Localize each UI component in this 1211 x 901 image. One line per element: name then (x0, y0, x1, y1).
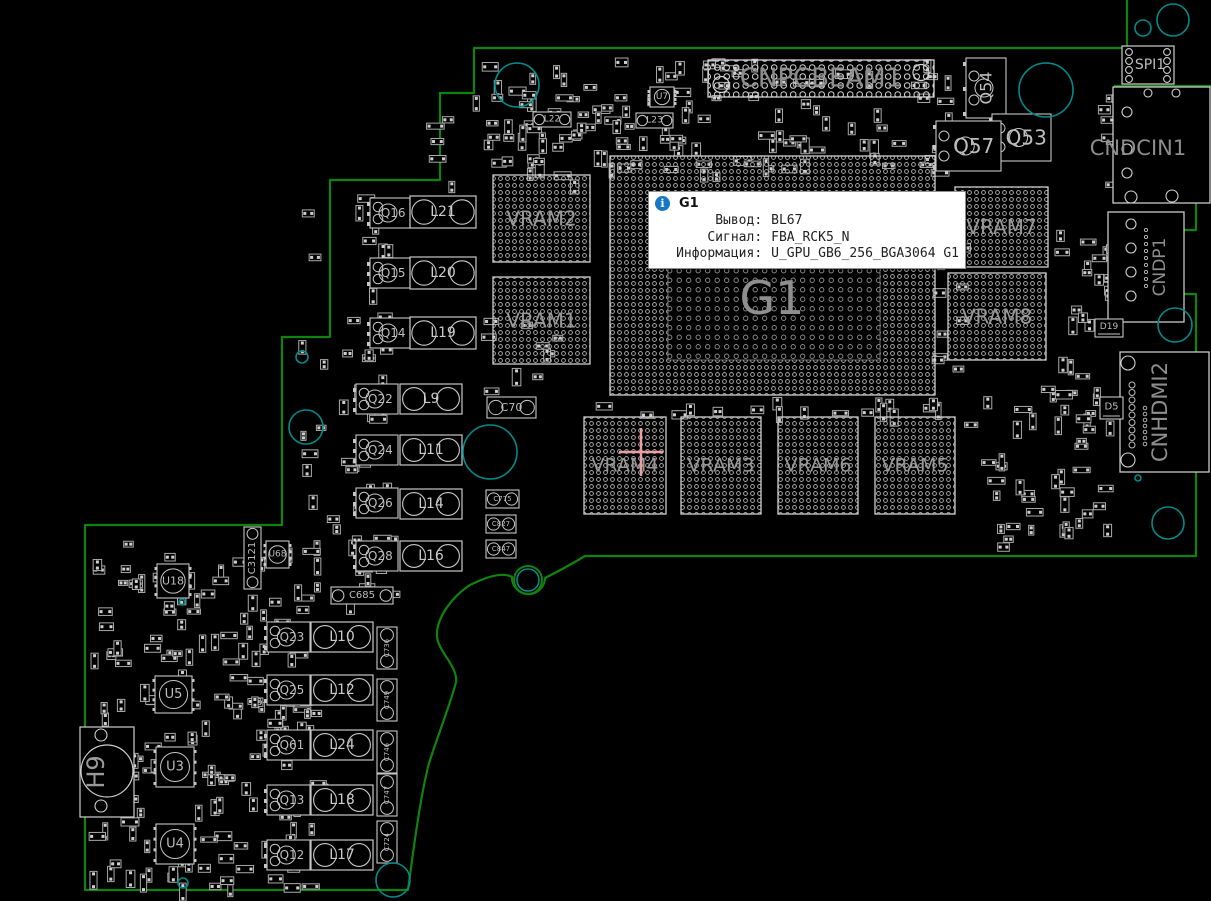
passive-pad (947, 114, 950, 117)
passive-pad (180, 601, 183, 604)
component-Q22[interactable]: Q22 (353, 384, 398, 414)
boardview-canvas[interactable]: G1VRAM2VRAM1VRAM7VRAM8VRAM4VRAM3VRAM6VRA… (0, 0, 1211, 901)
passive-pad (863, 147, 866, 150)
passive-pad (578, 133, 581, 136)
passive-pad (1052, 398, 1055, 401)
passive-pad (1071, 318, 1074, 321)
component-D5[interactable]: D5 (1100, 397, 1123, 419)
component-VRAM6[interactable]: VRAM6 (778, 417, 858, 514)
component-VRAM4[interactable]: VRAM4 (584, 417, 666, 514)
passive-pad (778, 408, 781, 411)
passive-pad (242, 644, 245, 647)
passive-pad (883, 127, 886, 130)
component-Q28[interactable]: Q28 (353, 541, 398, 571)
passive-pad (197, 806, 200, 809)
passive-pad (129, 883, 132, 886)
component-L21[interactable]: L21 (410, 196, 476, 228)
passive-pad (111, 862, 114, 865)
component-Q23[interactable]: Q23 (264, 622, 310, 652)
component-U68[interactable]: U68 (264, 541, 292, 568)
passive-pad (381, 376, 384, 379)
component-U5[interactable]: U5 (153, 676, 195, 713)
passive-pad (335, 530, 338, 533)
passive-pad (1005, 538, 1008, 541)
passive-pad (1078, 520, 1081, 523)
passive-pad (245, 791, 248, 794)
passive-pad (1063, 406, 1066, 409)
passive-pad (1083, 512, 1086, 515)
passive-pad (103, 704, 106, 707)
passive-pad (135, 820, 138, 823)
passive-pad (950, 100, 953, 103)
passive-pad (323, 365, 326, 368)
passive-pad (661, 138, 664, 141)
component-CNHDMI2[interactable]: CNHDMI2 (1120, 352, 1209, 472)
passive-pad (1071, 331, 1074, 334)
component-L16[interactable]: L16 (400, 541, 462, 571)
passive-pad (244, 676, 247, 679)
passive-pad (1102, 119, 1105, 122)
passive-pad (316, 588, 319, 591)
component-Q12[interactable]: Q12 (264, 840, 310, 870)
passive-pad (248, 627, 251, 630)
passive-pad (353, 468, 356, 471)
passive-pad (992, 461, 995, 464)
passive-pad (251, 607, 254, 610)
passive-pad (374, 230, 377, 233)
component-L18[interactable]: L18 (311, 785, 373, 815)
passive-pad (122, 568, 125, 571)
passive-pad (485, 390, 488, 393)
component-label: Q24 (368, 443, 393, 457)
component-C747[interactable]: C747 (377, 774, 397, 816)
passive-pad (1031, 414, 1034, 417)
passive-pad (575, 98, 578, 101)
component-U18[interactable]: U18 (155, 564, 192, 598)
passive-pad (671, 137, 674, 140)
passive-pad (96, 567, 99, 570)
passive-pad (269, 877, 272, 880)
component-U3[interactable]: U3 (154, 747, 197, 787)
component-SPI1[interactable]: SPI1 (1122, 46, 1174, 84)
component-label: U18 (162, 575, 184, 588)
component-C827[interactable]: C827 (486, 515, 516, 533)
passive-pad (142, 888, 145, 891)
passive-pad (303, 212, 306, 215)
passive-pad (231, 776, 234, 779)
passive-pad (440, 140, 443, 143)
component-Q13[interactable]: Q13 (264, 785, 310, 815)
component-L24[interactable]: L24 (311, 730, 373, 760)
passive-pad (893, 410, 896, 413)
passive-pad (529, 157, 532, 160)
passive-pad (368, 357, 371, 360)
passive-pad (815, 107, 818, 110)
passive-pad (101, 835, 104, 838)
passive-pad (585, 113, 588, 116)
passive-pad (677, 152, 680, 155)
passive-pad (109, 625, 112, 628)
passive-pad (188, 610, 191, 613)
passive-pad (227, 704, 230, 707)
passive-pad (1031, 492, 1034, 495)
passive-pad (1028, 408, 1031, 411)
component-L12[interactable]: L12 (311, 675, 373, 705)
passive-pad (371, 418, 374, 421)
component-Q57[interactable]: Q57 (933, 121, 1001, 171)
component-label: L10 (329, 629, 355, 645)
component-label: L21 (430, 204, 456, 220)
passive-pad (844, 412, 847, 415)
passive-pad (606, 119, 609, 122)
component-L22[interactable]: L22 (533, 112, 571, 127)
passive-pad (485, 320, 488, 323)
component-Q54[interactable]: Q54 (963, 58, 1006, 118)
passive-pad (986, 405, 989, 408)
passive-pad (171, 736, 174, 739)
component-C3121[interactable]: C3121 (244, 527, 261, 589)
component-label: C746 (383, 742, 391, 761)
component-label: C775 (493, 495, 511, 503)
tooltip-row: Сигнал:FBA_RCK5_N (655, 230, 959, 247)
passive-pad (255, 652, 258, 655)
passive-pad (151, 637, 154, 640)
component-VRAM2[interactable]: VRAM2 (493, 175, 590, 262)
component-label: C827 (492, 520, 510, 528)
passive-pad (1001, 479, 1004, 482)
passive-pad (939, 100, 942, 103)
passive-pad (706, 117, 709, 120)
passive-pad (932, 407, 935, 410)
passive-pad (171, 556, 174, 559)
component-C70[interactable]: C70 (487, 397, 536, 418)
component-Q15[interactable]: Q15 (367, 258, 410, 288)
passive-pad (127, 662, 130, 665)
passive-pad (1016, 434, 1019, 437)
passive-pad (667, 75, 670, 78)
passive-pad (684, 119, 687, 122)
component-C724[interactable]: C724 (377, 821, 397, 863)
passive-pad (372, 239, 375, 242)
passive-pad (225, 776, 228, 779)
passive-pad (1082, 440, 1085, 443)
passive-pad (251, 755, 254, 758)
component-label: L16 (418, 548, 444, 564)
component-C775[interactable]: C775 (486, 490, 519, 508)
component-label: U5 (165, 687, 183, 702)
component-L10[interactable]: L10 (311, 622, 373, 652)
component-Q16[interactable]: Q16 (367, 198, 410, 228)
passive-pad (603, 106, 606, 109)
component-C746[interactable]: C746 (377, 731, 397, 773)
component-label: Q12 (280, 848, 305, 862)
passive-pad (316, 550, 319, 553)
passive-pad (596, 151, 599, 154)
mounting-hole (1135, 475, 1141, 481)
passive-pad (688, 102, 691, 105)
component-VRAM1[interactable]: VRAM1 (493, 277, 590, 364)
passive-pad (487, 146, 490, 149)
passive-pad (342, 401, 345, 404)
passive-pad (1077, 417, 1080, 420)
passive-pad (1061, 369, 1064, 372)
component-Q24[interactable]: Q24 (353, 435, 398, 465)
passive-pad (287, 816, 290, 819)
passive-pad (259, 680, 262, 683)
passive-pad (381, 348, 384, 351)
passive-pad (260, 708, 263, 711)
passive-pad (585, 86, 588, 89)
passive-pad (1084, 445, 1087, 448)
passive-pad (310, 212, 313, 215)
passive-pad (1087, 417, 1090, 420)
passive-pad (1092, 412, 1095, 415)
component-label: C847 (492, 545, 510, 553)
edge-notch (514, 566, 542, 594)
passive-pad (1015, 408, 1018, 411)
passive-pad (777, 110, 780, 113)
passive-pad (642, 138, 645, 141)
passive-pad (557, 96, 560, 99)
passive-pad (93, 654, 96, 657)
component-Q25[interactable]: Q25 (264, 675, 310, 705)
component-L11[interactable]: L11 (400, 435, 462, 465)
passive-pad (116, 662, 119, 665)
passive-pad (618, 145, 621, 148)
passive-pad (225, 696, 228, 699)
passive-pad (302, 432, 305, 435)
passive-pad (243, 620, 246, 623)
passive-pad (1078, 309, 1081, 312)
tooltip-field-label: Вывод: (655, 213, 762, 230)
component-label: L22 (544, 115, 560, 125)
passive-pad (210, 781, 213, 784)
passive-pad (1073, 391, 1076, 394)
passive-pad (387, 253, 390, 256)
passive-pad (289, 836, 292, 839)
component-C847[interactable]: C847 (486, 540, 516, 558)
passive-pad (507, 121, 510, 124)
passive-pad (344, 352, 347, 355)
passive-pad (158, 637, 161, 640)
component-label: VRAM7 (966, 215, 1036, 239)
passive-pad (218, 809, 221, 812)
passive-pad (316, 559, 319, 562)
passive-pad (804, 150, 807, 153)
component-L17[interactable]: L17 (311, 840, 373, 870)
passive-pad (503, 160, 506, 163)
component-Q26[interactable]: Q26 (353, 488, 398, 518)
mounting-hole (1157, 4, 1189, 36)
component-VRAM5[interactable]: VRAM5 (875, 417, 955, 514)
component-C685[interactable]: C685 (331, 587, 393, 604)
component-label: VRAM5 (882, 455, 949, 477)
component-label: L17 (329, 847, 355, 863)
mounting-hole (376, 863, 410, 897)
passive-pad (531, 80, 534, 83)
component-U7[interactable]: U7 (648, 87, 677, 107)
component-label: L11 (418, 442, 444, 458)
component-label: C749 (383, 691, 391, 709)
passive-pad (322, 782, 325, 785)
passive-pad (630, 125, 633, 128)
passive-pad (983, 461, 986, 464)
passive-pad (568, 137, 571, 140)
passive-pad (1019, 491, 1022, 494)
passive-pad (876, 110, 879, 113)
component-CNPCBEAM1[interactable]: CNPCBEAM1 (708, 60, 934, 97)
passive-pad (116, 642, 119, 645)
passive-pad (760, 408, 763, 411)
passive-pad (1109, 422, 1112, 425)
passive-pad (356, 319, 359, 322)
component-VRAM8[interactable]: VRAM8 (948, 273, 1046, 360)
component-C736[interactable]: C736 (377, 627, 397, 669)
component-U4[interactable]: U4 (154, 824, 197, 864)
passive-pad (104, 824, 107, 827)
component-Q14[interactable]: Q14 (367, 318, 410, 348)
passive-pad (664, 128, 667, 131)
component-C749[interactable]: C749 (377, 679, 397, 721)
passive-pad (752, 408, 755, 411)
passive-pad (678, 63, 681, 66)
passive-pad (1092, 241, 1095, 244)
passive-pad (802, 103, 805, 106)
passive-pad (214, 579, 217, 582)
passive-pad (220, 566, 223, 569)
passive-pad (443, 118, 446, 121)
passive-pad (532, 94, 535, 97)
passive-pad (288, 764, 291, 767)
passive-pad (188, 661, 191, 664)
component-L23[interactable]: L23 (636, 113, 673, 128)
passive-pad (196, 595, 199, 598)
passive-pad (666, 138, 669, 141)
passive-pad (496, 82, 499, 85)
passive-pad (1042, 388, 1045, 391)
passive-pad (493, 162, 496, 165)
component-CNDP1[interactable]: CNDP1 (1108, 212, 1184, 322)
passive-pad (440, 125, 443, 128)
passive-pad (1061, 491, 1064, 494)
component-L19[interactable]: L19 (410, 317, 476, 349)
passive-pad (1060, 470, 1063, 473)
passive-pad (623, 96, 626, 99)
passive-pad (1109, 487, 1112, 490)
passive-pad (387, 246, 390, 249)
passive-pad (269, 722, 272, 725)
passive-pad (358, 207, 361, 210)
passive-pad (290, 655, 293, 658)
passive-pad (222, 879, 225, 882)
passive-pad (144, 769, 147, 772)
passive-pad (230, 857, 233, 860)
passive-pad (196, 603, 199, 606)
component-label: C685 (349, 590, 375, 601)
passive-pad (1084, 428, 1087, 431)
component-VRAM7[interactable]: VRAM7 (955, 187, 1048, 267)
component-L9[interactable]: L9 (400, 384, 462, 414)
component-label: D19 (1100, 322, 1119, 332)
passive-pad (1067, 535, 1070, 538)
passive-pad (1068, 393, 1071, 396)
passive-pad (509, 160, 512, 163)
passive-pad (1063, 498, 1066, 501)
passive-pad (204, 732, 207, 735)
passive-pad (253, 704, 256, 707)
component-label: Q23 (280, 630, 305, 644)
component-L14[interactable]: L14 (400, 489, 462, 519)
passive-pad (120, 707, 123, 710)
passive-pad (250, 868, 253, 871)
component-label: Q26 (368, 496, 393, 510)
component-label: VRAM8 (962, 305, 1032, 329)
passive-pad (580, 124, 583, 127)
component-label: L9 (423, 391, 440, 407)
passive-pad (494, 122, 497, 125)
component-label: VRAM2 (506, 207, 576, 231)
passive-pad (165, 605, 168, 608)
passive-pad (1078, 440, 1081, 443)
passive-pad (540, 160, 543, 163)
component-Q61[interactable]: Q61 (264, 730, 310, 760)
passive-pad (204, 773, 207, 776)
component-D19[interactable]: D19 (1095, 319, 1123, 337)
passive-pad (673, 146, 676, 149)
passive-pad (1059, 231, 1062, 234)
passive-pad (245, 784, 248, 787)
passive-pad (802, 137, 805, 140)
passive-pad (807, 103, 810, 106)
passive-pad (603, 152, 606, 155)
passive-pad (615, 129, 618, 132)
passive-pad (515, 382, 518, 385)
passive-pad (297, 597, 300, 600)
passive-pad (202, 592, 205, 595)
passive-pad (1103, 257, 1106, 260)
passive-pad (877, 399, 880, 402)
passive-pad (510, 90, 513, 93)
passive-pad (285, 886, 288, 889)
tooltip-field-value: FBA_RCK5_N (762, 230, 959, 247)
passive-pad (109, 878, 112, 881)
passive-pad (488, 122, 491, 125)
passive-pad (134, 798, 137, 801)
passive-pad (771, 140, 774, 143)
passive-pad (1070, 491, 1073, 494)
passive-pad (1099, 487, 1102, 490)
passive-pad (342, 411, 345, 414)
passive-pad (624, 61, 627, 64)
passive-pad (679, 137, 682, 140)
passive-pad (1074, 468, 1077, 471)
passive-pad (100, 625, 103, 628)
passive-pad (252, 799, 255, 802)
passive-pad (1051, 388, 1054, 391)
component-L20[interactable]: L20 (410, 257, 476, 289)
passive-pad (803, 408, 806, 411)
passive-pad (229, 893, 232, 896)
component-VRAM3[interactable]: VRAM3 (681, 417, 761, 514)
passive-pad (778, 132, 781, 135)
component-H9[interactable]: H9 (80, 727, 134, 817)
passive-pad (999, 529, 1002, 532)
passive-pad (888, 400, 891, 403)
passive-pad (236, 715, 239, 718)
passive-pad (833, 412, 836, 415)
passive-pad (305, 608, 308, 611)
passive-pad (1060, 480, 1063, 483)
